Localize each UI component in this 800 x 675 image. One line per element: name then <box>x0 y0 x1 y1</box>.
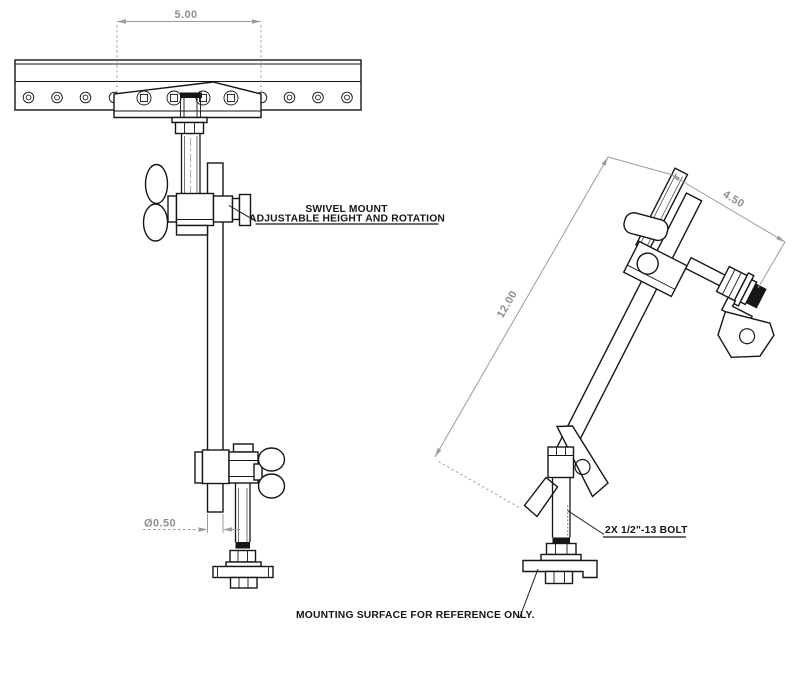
clamp-body <box>177 194 214 226</box>
swivel-callout-line2: ADJUSTABLE HEIGHT AND ROTATION <box>249 214 445 225</box>
clamp-lower-jaw <box>177 226 208 236</box>
front-view: 5.00 Ø0.50 SWIVEL MOUNT ADJUSTABLE HEIGH… <box>15 9 445 588</box>
wing-nut-right <box>254 448 285 498</box>
side-lower-clamp <box>525 426 609 517</box>
clamp-spacer <box>214 196 233 222</box>
thread-engagement <box>553 538 571 544</box>
hex-nut <box>176 123 204 134</box>
dim-rail-width-text: 5.00 <box>174 9 197 21</box>
washer <box>172 118 207 123</box>
swivel-mount-drawing: 5.00 Ø0.50 SWIVEL MOUNT ADJUSTABLE HEIGH… <box>0 0 800 675</box>
lower-clamp-top-nut <box>234 444 254 452</box>
side-view: 12.00 4.50 2X 1/2"-13 BOLT MOUNTING SURF… <box>296 157 800 621</box>
wing-nut-left <box>144 165 177 242</box>
dim-tube-diameter: Ø0.50 <box>143 514 240 533</box>
rod-hanger <box>172 118 207 197</box>
lower-clamp-body <box>548 447 574 478</box>
drawing-sheet: 5.00 Ø0.50 SWIVEL MOUNT ADJUSTABLE HEIGH… <box>0 0 800 675</box>
bolt-callout: 2X 1/2"-13 BOLT <box>568 511 689 538</box>
mounting-surface-callout: MOUNTING SURFACE FOR REFERENCE ONLY. <box>296 569 538 621</box>
dim-tube-diameter-text: Ø0.50 <box>144 518 176 530</box>
swivel-callout: SWIVEL MOUNT ADJUSTABLE HEIGHT AND ROTAT… <box>229 204 445 225</box>
bolt-head-section <box>180 93 202 99</box>
bottom-hex-nut <box>546 572 573 584</box>
lower-clamp-body <box>203 450 230 484</box>
washer <box>541 555 581 561</box>
bolt-callout-text: 2X 1/2"-13 BOLT <box>605 525 688 536</box>
bottom-hex-nut <box>231 578 258 589</box>
thread-engagement <box>236 542 251 549</box>
mounting-plate <box>213 567 273 578</box>
hex-nut <box>547 544 577 555</box>
dim-mount-offset-text: 4.50 <box>721 188 747 210</box>
mounting-surface-callout-text: MOUNTING SURFACE FOR REFERENCE ONLY. <box>296 610 535 621</box>
hex-nut <box>230 551 256 563</box>
